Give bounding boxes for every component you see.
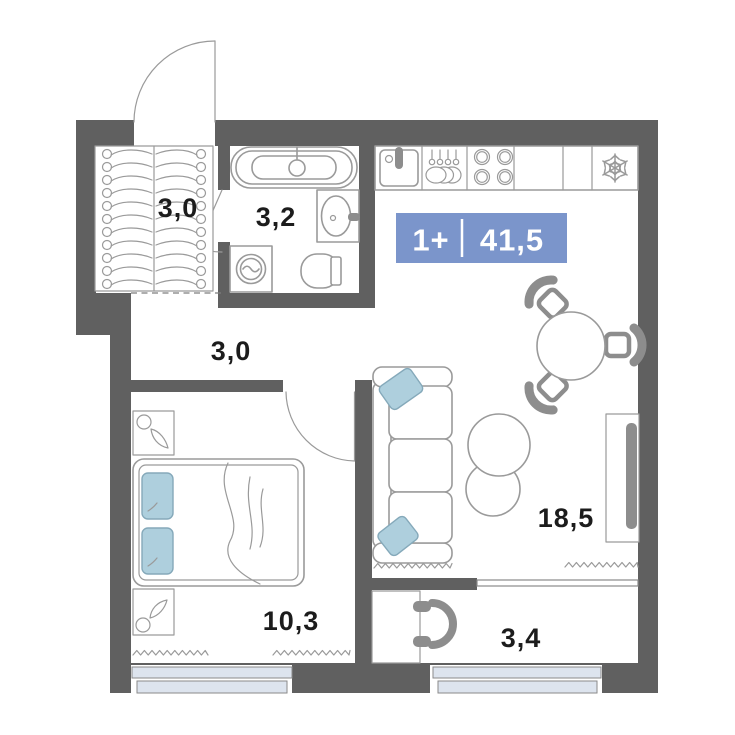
floor-plan: 3,0 3,2 3,0 10,3 18,5 3,4 1+ 41,5 <box>0 0 735 735</box>
bedroom-area-label: 10,3 <box>263 606 320 636</box>
bedroom-window <box>131 665 292 693</box>
balcony-area-label: 3,4 <box>501 623 542 653</box>
kitchen-counter <box>375 146 638 190</box>
washing-machine <box>230 246 272 292</box>
badge-rooms-label: 1+ <box>412 223 449 258</box>
living-kitchen-area-label: 18,5 <box>538 503 595 533</box>
balcony-cabinet <box>372 591 420 663</box>
entry-closet-area-label: 3,0 <box>158 193 199 223</box>
balcony-window <box>430 665 602 693</box>
washbasin <box>317 190 360 242</box>
bedroom-door <box>286 392 355 461</box>
coffee-tables <box>466 414 530 516</box>
dining-table <box>523 274 642 415</box>
hallway-area-label: 3,0 <box>211 336 252 366</box>
balcony-glazing <box>477 580 638 586</box>
badge-area-value: 41,5 <box>480 223 544 258</box>
bathroom-area-label: 3,2 <box>256 202 297 232</box>
tv-unit <box>606 414 639 542</box>
bathtub <box>231 147 357 188</box>
toilet <box>301 254 341 288</box>
sofa <box>373 367 452 563</box>
entrance-door <box>134 41 215 122</box>
apartment-type-badge: 1+ 41,5 <box>396 213 567 263</box>
